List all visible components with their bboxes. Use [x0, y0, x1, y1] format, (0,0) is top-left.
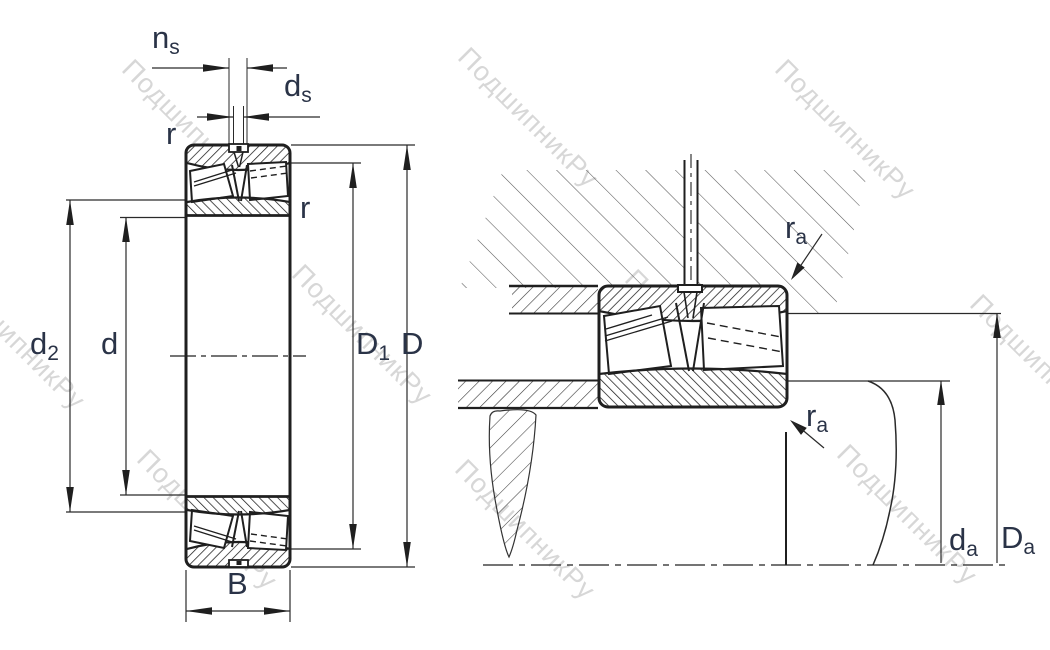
label-ra-top: ra — [785, 212, 807, 248]
label-Da: Da — [1001, 522, 1035, 558]
label-D1: D1 — [356, 328, 390, 364]
label-D: D — [401, 328, 423, 364]
label-ns: ns — [152, 22, 180, 58]
label-d: d — [101, 328, 118, 364]
label-r-right: r — [300, 192, 310, 228]
label-layer: ns ds r r d2 d D1 D B ra ra da Da — [0, 0, 1050, 650]
label-r-top: r — [166, 118, 176, 154]
technical-drawing-page: ПодшипникРуПодшипникРуПодшипникРуПодшипн… — [0, 0, 1050, 650]
label-ra-bottom: ra — [806, 400, 828, 436]
label-B: B — [227, 568, 248, 604]
label-d2: d2 — [30, 328, 59, 364]
label-ds: ds — [284, 70, 312, 106]
label-da: da — [949, 524, 978, 560]
